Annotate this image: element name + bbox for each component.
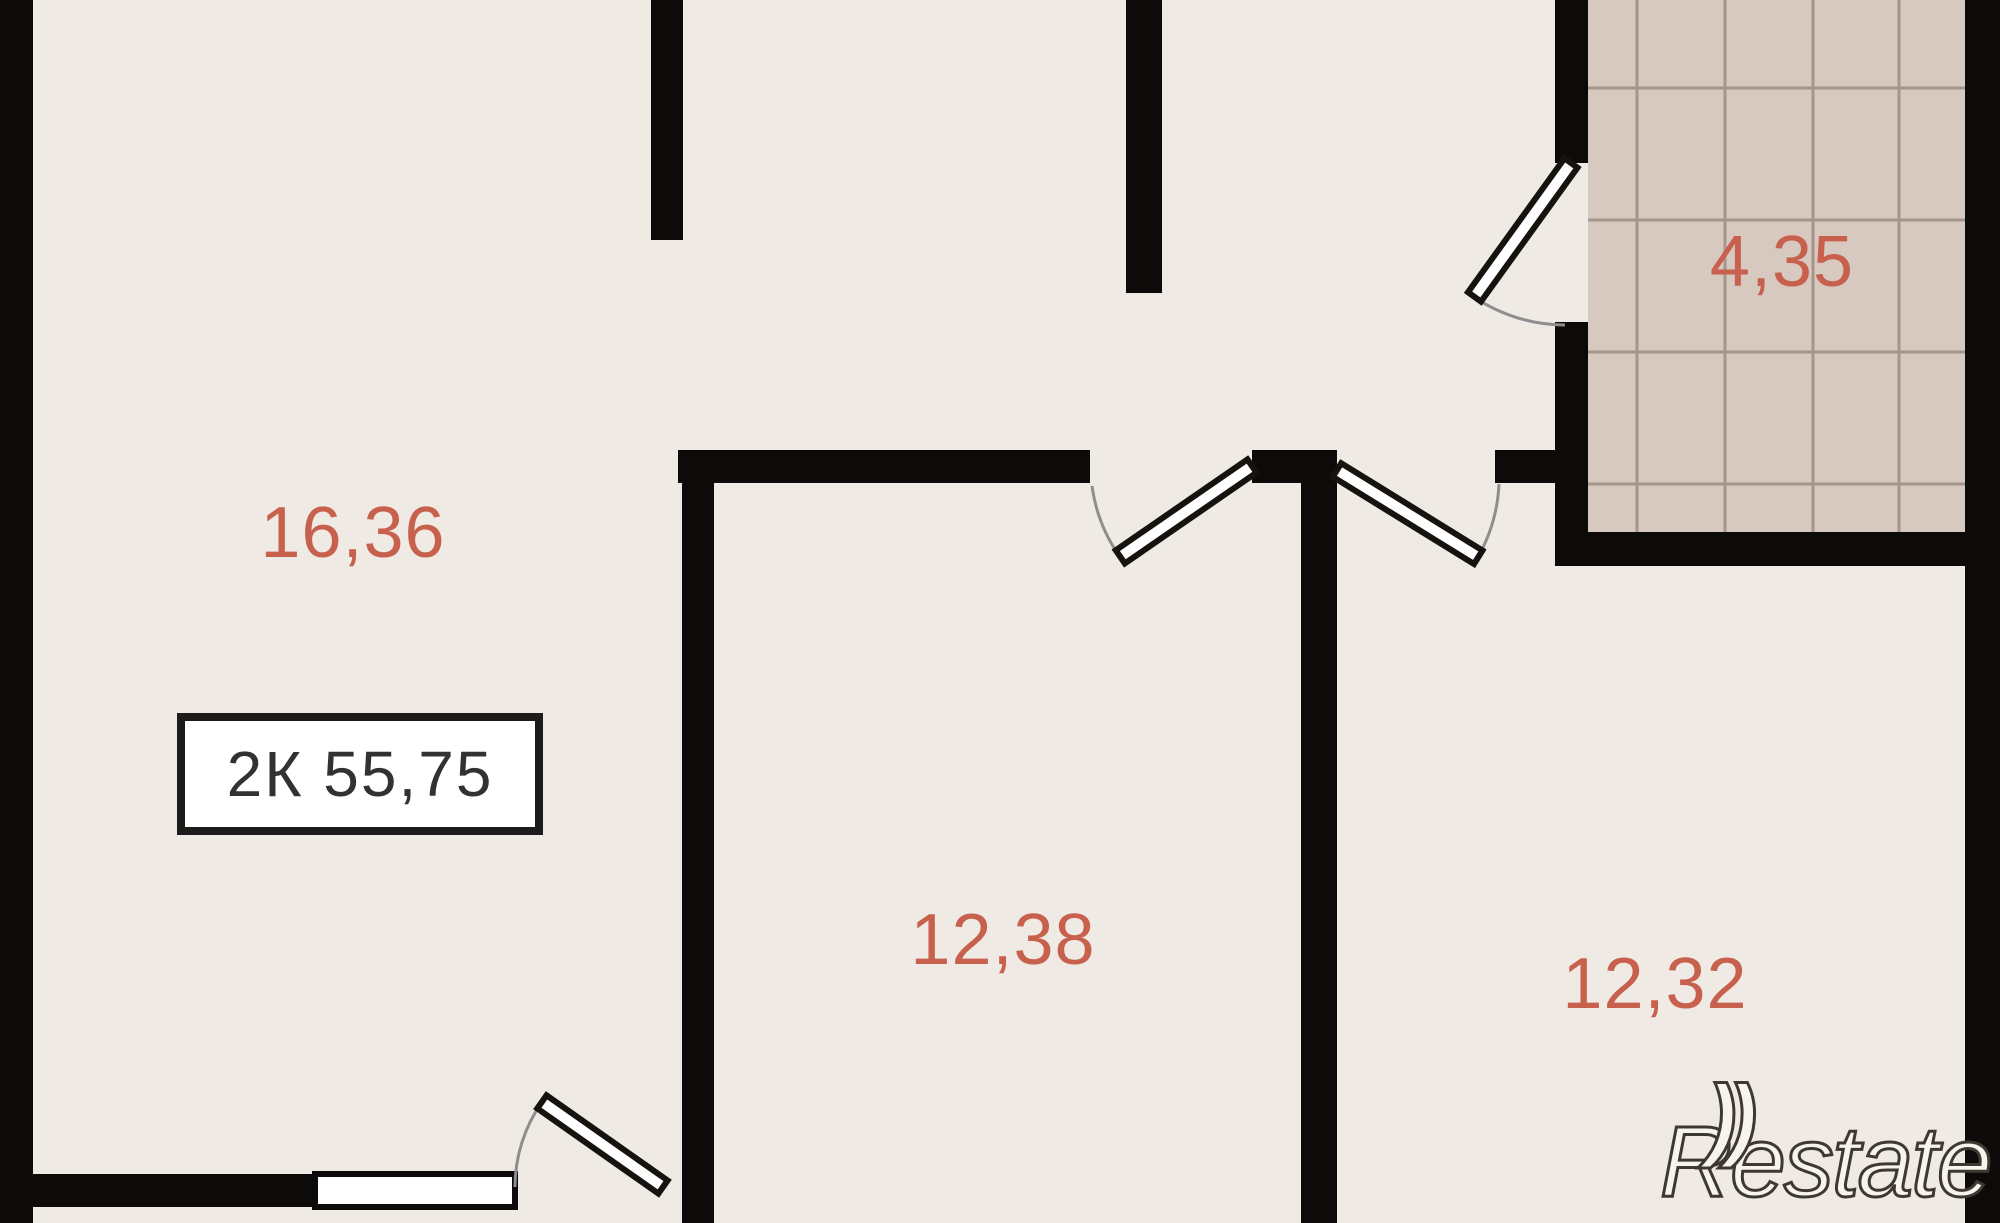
room-label-living: 16,36	[260, 497, 445, 569]
wall-bottom-living	[33, 1174, 315, 1207]
room-label-right: 12,32	[1562, 948, 1747, 1020]
wall-top-stub-left	[651, 0, 683, 240]
wall-middle-horizontal-1	[678, 450, 1090, 483]
room-label-bathroom: 4,35	[1710, 226, 1854, 298]
door-swing-arc	[1474, 297, 1565, 325]
door-room-middle	[1092, 459, 1257, 563]
door-swing-arc	[1478, 484, 1499, 557]
wall-bathroom-left-lower	[1555, 322, 1588, 532]
wall-left-outer	[0, 0, 33, 1223]
door-swing-arc	[515, 1102, 542, 1187]
room-label-middle: 12,38	[910, 904, 1095, 976]
wall-vertical-living-divider	[682, 450, 714, 1223]
wall-bathroom-left-upper	[1555, 0, 1588, 163]
door-room-right	[1333, 463, 1499, 564]
floorplan-drawing	[0, 0, 2000, 1223]
wall-bathroom-bottom	[1555, 532, 2000, 566]
restate-watermark: )) Restate	[1660, 1112, 1991, 1212]
floorplan-canvas: 16,36 12,38 12,32 4,35 2К 55,75 )) Resta…	[0, 0, 2000, 1223]
door-leaf	[1333, 463, 1483, 564]
wall-right-outer	[1965, 0, 2000, 1223]
wall-middle-horizontal-3	[1495, 450, 1557, 483]
wall-vertical-rooms-divider	[1301, 450, 1337, 1223]
unit-area-box: 2К 55,75	[177, 713, 543, 835]
door-leaf	[1116, 459, 1257, 563]
door-living-room	[515, 1095, 668, 1193]
window-living-room	[315, 1174, 515, 1207]
door-bathroom	[1468, 158, 1577, 325]
door-leaf	[537, 1095, 667, 1193]
door-swing-arc	[1092, 486, 1120, 557]
unit-area-text: 2К 55,75	[227, 737, 494, 811]
watermark-logo-arcs-icon: ))	[1706, 1072, 1747, 1164]
wall-top-stub-right	[1126, 0, 1162, 293]
door-leaf	[1468, 158, 1577, 301]
